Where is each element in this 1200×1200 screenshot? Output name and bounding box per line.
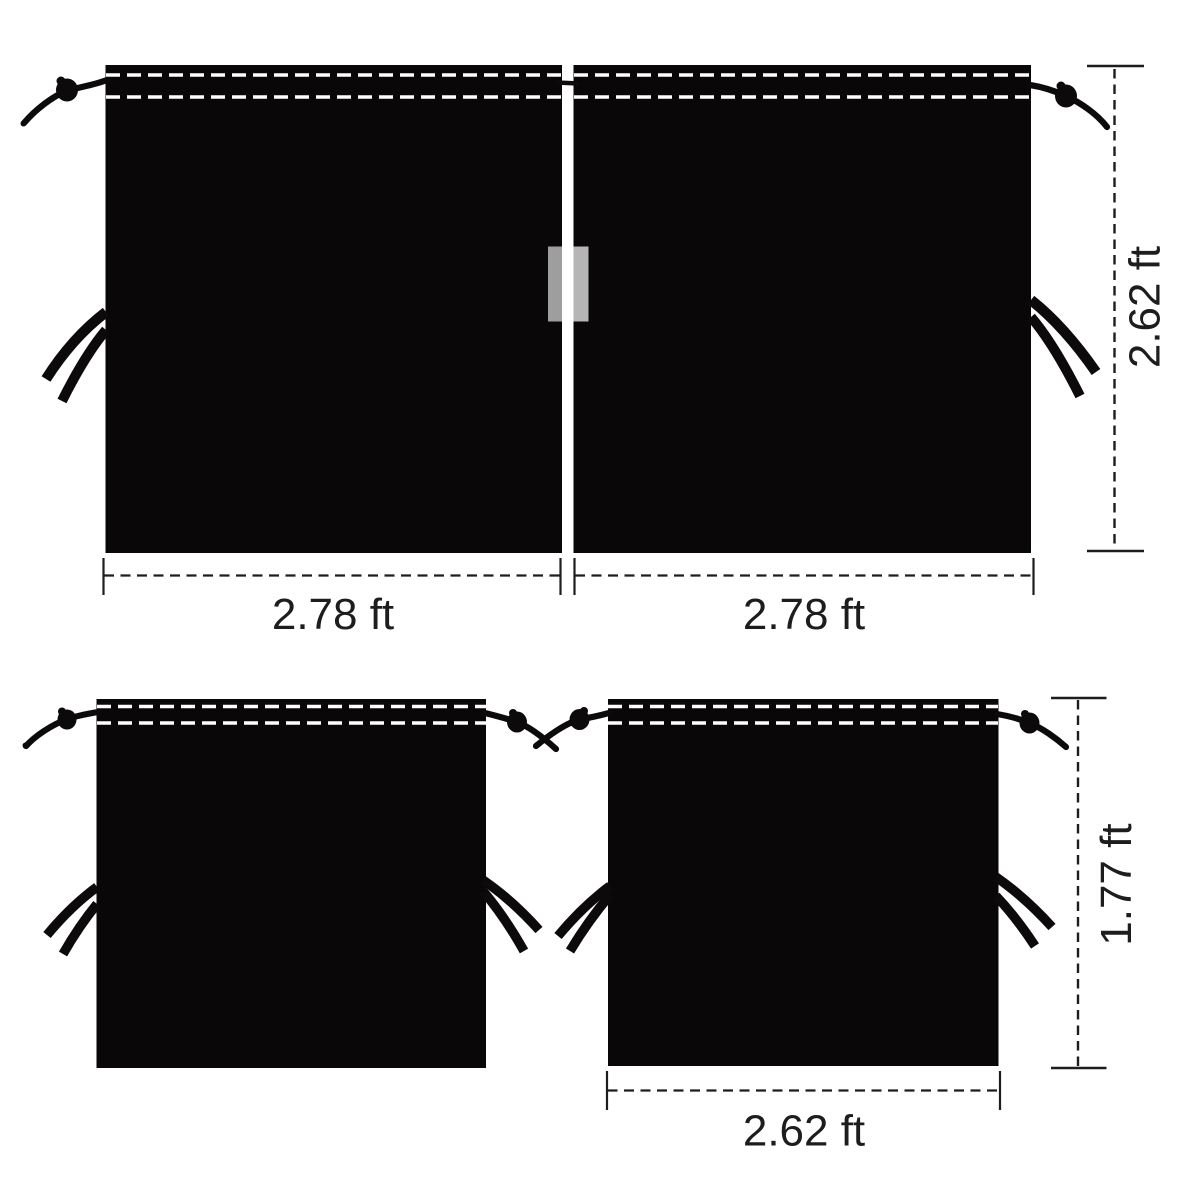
svg-text:1.77 ft: 1.77 ft [1092, 823, 1141, 945]
svg-text:2.62 ft: 2.62 ft [743, 1107, 865, 1156]
svg-text:2.78 ft: 2.78 ft [743, 590, 865, 639]
svg-text:2.62 ft: 2.62 ft [1121, 246, 1170, 368]
svg-text:2.78 ft: 2.78 ft [272, 590, 394, 639]
